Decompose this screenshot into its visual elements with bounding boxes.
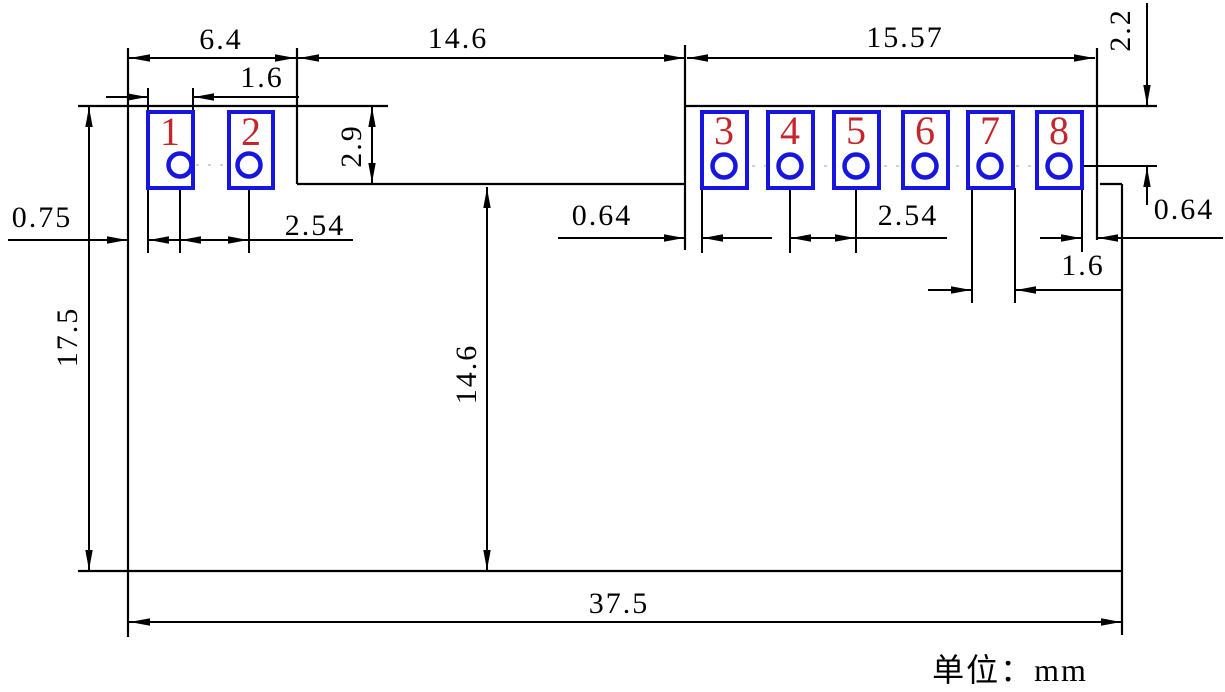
pad-array <box>148 112 1082 188</box>
pad-8-number: 8 <box>1049 111 1069 151</box>
dim-label-1.6-right: 1.6 <box>1061 251 1105 281</box>
pad-6-number: 6 <box>915 111 935 151</box>
dim-label-17.5: 17.5 <box>53 307 83 368</box>
dim-label-15.57: 15.57 <box>866 23 944 53</box>
dim-label-2.54-left: 2.54 <box>285 211 346 241</box>
pad-5-number: 5 <box>846 111 866 151</box>
dim-label-37.5: 37.5 <box>589 589 650 619</box>
dim-label-0.64-right: 0.64 <box>1154 195 1215 225</box>
pad-1-number: 1 <box>160 112 180 152</box>
dim-label-1.6-left: 1.6 <box>240 63 284 93</box>
pad-7-hole <box>979 155 1002 178</box>
dim-label-2.9: 2.9 <box>337 124 367 168</box>
dimension-lines <box>8 3 1223 622</box>
dim-label-6.4: 6.4 <box>199 25 243 55</box>
dim-label-14.6-vert: 14.6 <box>452 344 482 405</box>
dim-label-2.54-right: 2.54 <box>878 201 939 231</box>
pad-4-number: 4 <box>780 111 800 151</box>
pad-8-hole <box>1048 155 1071 178</box>
pad-1-hole <box>169 154 192 177</box>
pad-3-hole <box>713 155 736 178</box>
pad-6-hole <box>914 155 937 178</box>
pad-2-hole <box>238 154 261 177</box>
pad-3-number: 3 <box>714 111 734 151</box>
pad-2-number: 2 <box>241 112 261 152</box>
pad-5-hole <box>845 155 868 178</box>
unit-note: 单位：mm <box>932 645 1088 691</box>
dim-label-14.6-top: 14.6 <box>428 24 489 54</box>
pad-4-hole <box>779 155 802 178</box>
dim-label-0.64-left: 0.64 <box>572 201 633 231</box>
dim-label-0.75: 0.75 <box>12 203 73 233</box>
dimension-drawing: 1 2 3 4 5 6 7 8 6.4 1.6 14.6 15.57 2.2 2… <box>0 0 1225 692</box>
pad-7-number: 7 <box>980 111 1000 151</box>
dim-label-2.2: 2.2 <box>1106 8 1136 52</box>
